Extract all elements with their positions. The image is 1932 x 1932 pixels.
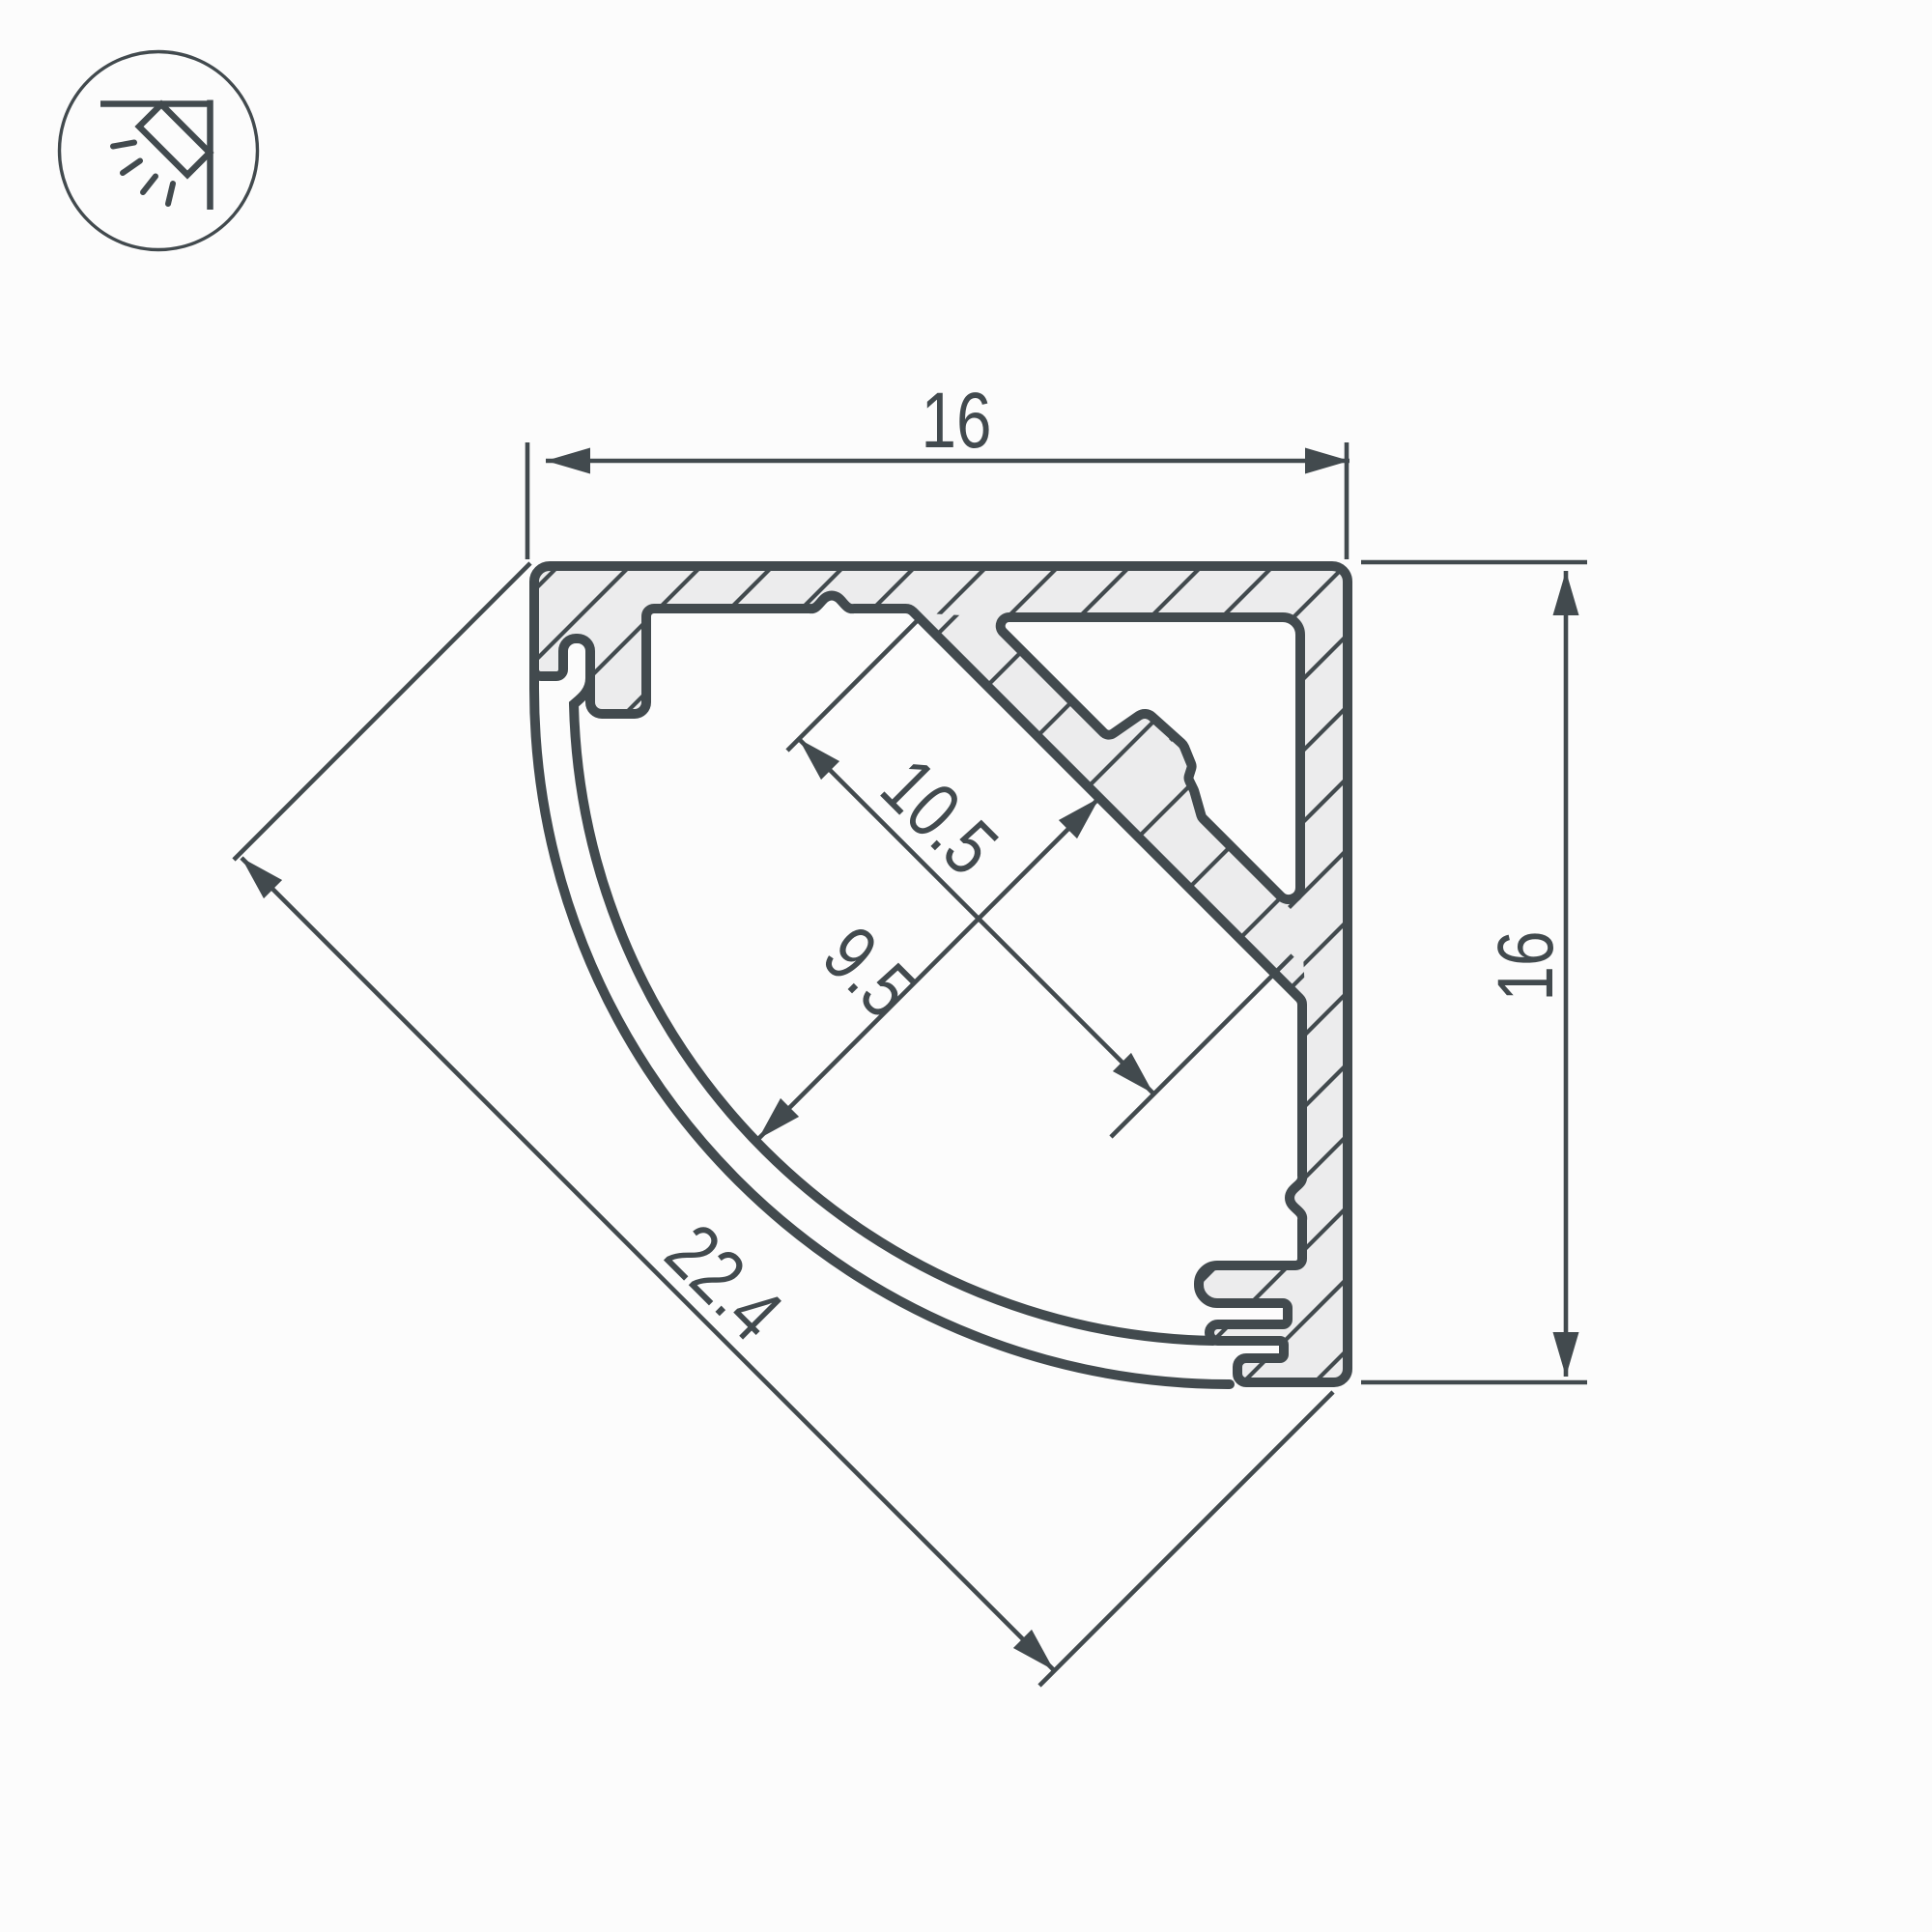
svg-text:16: 16 xyxy=(1481,931,1570,1002)
svg-text:16: 16 xyxy=(922,376,992,465)
